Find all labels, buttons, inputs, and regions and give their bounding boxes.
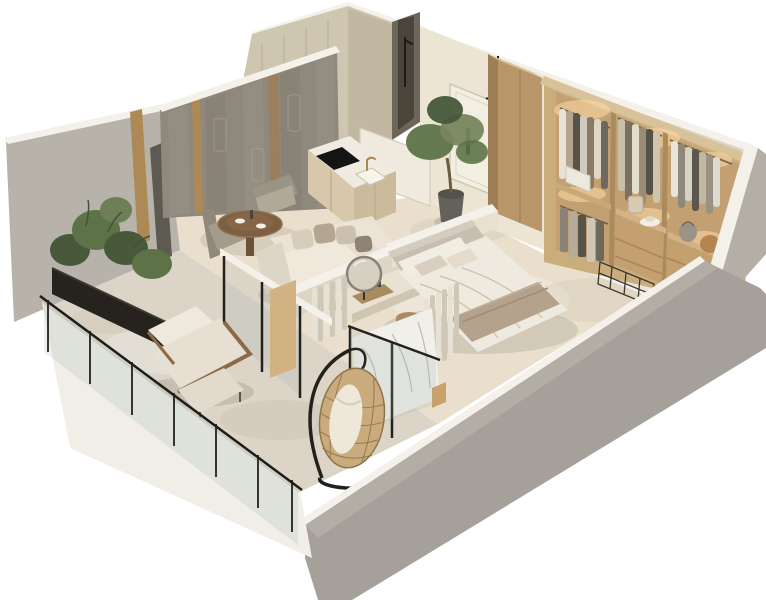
basket	[628, 196, 643, 213]
isometric-apartment-scene	[0, 0, 766, 600]
plate	[235, 219, 245, 224]
plate	[256, 224, 266, 229]
bottle	[250, 210, 253, 219]
door-wood-pillar	[270, 280, 296, 378]
floor-plan-render	[0, 0, 766, 600]
tall-cabinet	[488, 54, 542, 232]
bag-gray	[679, 222, 697, 242]
